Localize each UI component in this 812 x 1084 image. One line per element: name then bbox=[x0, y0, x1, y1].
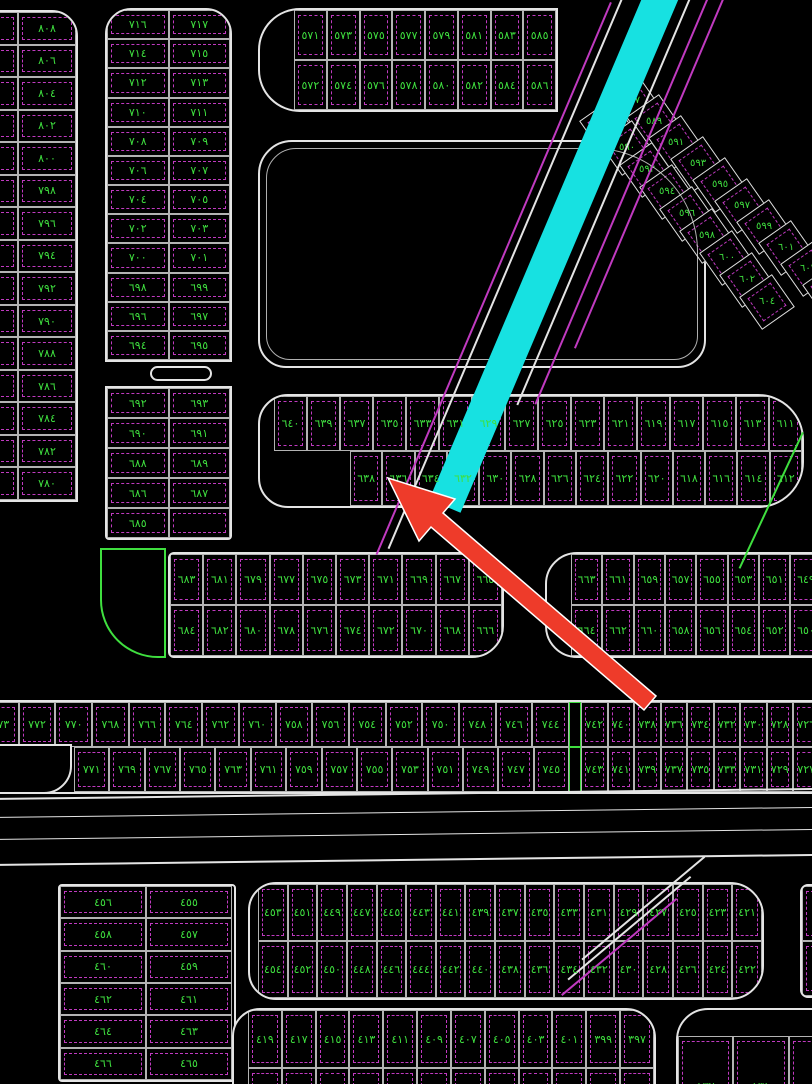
plot-number: ٦٣٨ bbox=[357, 473, 375, 484]
plot-cell[interactable]: ٦٩٧ bbox=[169, 302, 231, 331]
plot-cell[interactable]: ٧٨٨ bbox=[18, 337, 76, 370]
plot-cell[interactable]: ٥٨٤ bbox=[491, 60, 524, 110]
plot-cell[interactable]: ٤٠٧ bbox=[451, 1010, 485, 1068]
plot-row: ٧١٠٧١١ bbox=[107, 98, 230, 127]
plot-cell[interactable]: ٨٠٤ bbox=[18, 77, 76, 110]
plot-cell[interactable]: ٧٤١ bbox=[608, 747, 635, 792]
plot-cell[interactable]: ٦٨٧ bbox=[169, 478, 231, 508]
plot-cell[interactable]: ٦٥٢ bbox=[759, 605, 790, 656]
plot-cell[interactable]: ٨٠٦ bbox=[18, 45, 76, 78]
plot-cell[interactable]: ٤٢٤ bbox=[703, 941, 733, 998]
plot-cell[interactable]: ٧١٧ bbox=[169, 10, 231, 39]
plot-cell[interactable]: ٧٢٧ bbox=[793, 747, 812, 792]
plot-cell[interactable]: ٦٩٩ bbox=[169, 273, 231, 302]
plot-cell[interactable]: ٧٩١ bbox=[0, 305, 18, 338]
plot-cell[interactable]: ٧٤٥ bbox=[534, 747, 569, 792]
plot-cell[interactable]: ٤٦٥ bbox=[146, 1048, 232, 1080]
plot-cell[interactable]: ٧٣٨ bbox=[634, 702, 661, 747]
plot-cell[interactable]: ٧٩٢ bbox=[18, 272, 76, 305]
plot-cell[interactable]: ٥٧٣ bbox=[327, 10, 360, 60]
plot-number: ٦٠٢ bbox=[739, 275, 755, 285]
plot-cell[interactable]: ٤٦٤ bbox=[60, 1015, 146, 1047]
plot-cell[interactable]: ٦٧١ bbox=[369, 554, 402, 605]
plot-cell[interactable]: ٧٦٠ bbox=[239, 702, 276, 747]
plot-cell[interactable] bbox=[485, 1068, 519, 1084]
plot-cell[interactable]: ٦٩٤ bbox=[107, 331, 169, 360]
plot-cell[interactable]: ٧٨٠ bbox=[18, 467, 76, 500]
plot-cell[interactable]: ٧٣٢ bbox=[714, 702, 741, 747]
plot-cell[interactable]: ٦٦٧ bbox=[436, 554, 469, 605]
plot-cell[interactable]: ٧٥٥ bbox=[357, 747, 392, 792]
plot-cell[interactable]: ٦٦٦ bbox=[469, 605, 502, 656]
plot-cell[interactable]: ٧٥٢ bbox=[386, 702, 423, 747]
plot-cell[interactable]: ٥٨١ bbox=[458, 10, 491, 60]
plot-cell[interactable]: ٤٠٩ bbox=[417, 1010, 451, 1068]
plot-number: ٦٢١ bbox=[612, 418, 630, 429]
plot-number: ٦٢٩ bbox=[480, 418, 498, 429]
plot-cell[interactable]: ٦٧٣ bbox=[336, 554, 369, 605]
plot-cell[interactable]: ٥٧٥ bbox=[360, 10, 393, 60]
plot-cell[interactable]: ٤٣٠ bbox=[614, 941, 644, 998]
plot-cell[interactable] bbox=[789, 1036, 812, 1084]
plot-number: ٥٧٩ bbox=[433, 30, 451, 41]
plot-cell[interactable]: ٧١٦ bbox=[107, 10, 169, 39]
plot-row: ٧١٤٧١٥ bbox=[107, 39, 230, 68]
plot-cell[interactable]: ٤٤٩ bbox=[317, 884, 347, 941]
plot-cell[interactable]: ٧١١ bbox=[169, 98, 231, 127]
plot-cell[interactable]: ٦٥٩ bbox=[634, 554, 665, 605]
plot-cell[interactable]: ٧٠٠ bbox=[107, 243, 169, 272]
plot-number: ٧٤٥ bbox=[542, 764, 560, 775]
plot-cell[interactable]: ٧٤٣ bbox=[581, 747, 608, 792]
plot-cell[interactable]: ٦١٤ bbox=[737, 451, 769, 506]
plot-setback-boundary bbox=[173, 513, 227, 533]
plot-setback-boundary bbox=[0, 407, 14, 430]
plot-cell[interactable]: ٦٧٥ bbox=[303, 554, 336, 605]
plot-cell[interactable]: ٧٧١ bbox=[74, 747, 109, 792]
plot-cell[interactable]: ٦٣٨ bbox=[350, 451, 382, 506]
plot-number: ٧٣٩ bbox=[638, 764, 656, 775]
plot-cell[interactable]: ٧٣٥ bbox=[687, 747, 714, 792]
plot-cell[interactable]: ٧٨٢ bbox=[18, 435, 76, 468]
plot-cell[interactable]: ٧٤٨ bbox=[459, 702, 496, 747]
plot-cell[interactable]: ٤٤١ bbox=[436, 884, 466, 941]
plot-cell[interactable]: ٧٠٥ bbox=[169, 185, 231, 214]
plot-cell[interactable]: ٦٧٩ bbox=[236, 554, 269, 605]
plot-number: ٤٦٢ bbox=[94, 994, 112, 1005]
plot-cell[interactable]: ٦٢٣ bbox=[571, 396, 604, 451]
plot-cell[interactable]: ٤٤٠ bbox=[465, 941, 495, 998]
plot-cell[interactable]: ٤٣٧ bbox=[495, 884, 525, 941]
plot-cell[interactable]: ٧٣٩ bbox=[634, 747, 661, 792]
plot-cell[interactable]: ٤٢٥ bbox=[673, 884, 703, 941]
plot-cell[interactable]: ٦٥٦ bbox=[696, 605, 727, 656]
plot-cell[interactable]: ٧٠٣ bbox=[169, 214, 231, 243]
plot-cell[interactable]: ٧٠٨ bbox=[107, 127, 169, 156]
plot-cell[interactable]: ٤٤٣ bbox=[406, 884, 436, 941]
plot-cell[interactable]: ٧٢٩ bbox=[767, 747, 794, 792]
plot-cell[interactable] bbox=[169, 508, 231, 538]
plot-cell[interactable]: ٦٦١ bbox=[602, 554, 633, 605]
plot-cell[interactable]: ٥٧١ bbox=[294, 10, 327, 60]
plot-cell[interactable]: ٤٣٩ bbox=[465, 884, 495, 941]
plot-cell[interactable]: ٧٩٠ bbox=[18, 305, 76, 338]
plot-cell[interactable]: ٧٤٤ bbox=[532, 702, 569, 747]
plot-cell[interactable]: ٤١٧ bbox=[282, 1010, 316, 1068]
plot-number: ٦٣٢ bbox=[454, 473, 472, 484]
plot-cell[interactable] bbox=[316, 1068, 350, 1084]
plot-cell[interactable]: ٨٠٢ bbox=[18, 110, 76, 143]
plot-cell[interactable]: ٤٣١ bbox=[584, 884, 614, 941]
plot-setback-boundary bbox=[0, 17, 14, 40]
plot-cell[interactable]: ٧٦١ bbox=[251, 747, 286, 792]
plot-cell[interactable]: ٧٩٣ bbox=[0, 272, 18, 305]
plot-cell[interactable]: ٤٣٣ bbox=[554, 884, 584, 941]
plot-number: ٥٧٣ bbox=[334, 30, 352, 41]
plot-cell[interactable]: ٤٣٨ bbox=[495, 941, 525, 998]
plot-cell[interactable] bbox=[620, 1068, 654, 1084]
plot-cell[interactable]: ٤١٩ bbox=[248, 1010, 282, 1068]
block-top-left-outer: ٨٠٩٨٠٨٨٠٧٨٠٦٨٠٥٨٠٤٨٠٣٨٠٢٨٠١٨٠٠٧٩٩٧٩٨٧٩٧٧… bbox=[0, 10, 78, 502]
plot-number: ٤٣٦ bbox=[531, 964, 549, 975]
plot-cell[interactable]: ٦٣٠ bbox=[479, 451, 511, 506]
plot-cell[interactable]: ٧٦٢ bbox=[202, 702, 239, 747]
plot-cell[interactable]: ٦٩٦ bbox=[107, 302, 169, 331]
plot-cell[interactable]: ٧٥١ bbox=[428, 747, 463, 792]
plot-cell[interactable]: ٦٥٨ bbox=[665, 605, 696, 656]
plot-cell[interactable]: ٧٠٢ bbox=[107, 214, 169, 243]
plot-cell[interactable] bbox=[282, 1068, 316, 1084]
plot-number: ٤٥٢ bbox=[294, 964, 312, 975]
plot-cell[interactable]: ٦٧٢ bbox=[369, 605, 402, 656]
plot-cell[interactable]: ٧٣٧ bbox=[661, 747, 688, 792]
plot-cell[interactable]: ٧٦٤ bbox=[165, 702, 202, 747]
plot-cell[interactable]: ٧٤٧ bbox=[498, 747, 533, 792]
plot-number: ٧٠٥ bbox=[190, 194, 208, 205]
plot-cell[interactable]: ٦٣٩ bbox=[307, 396, 340, 451]
plot-cell[interactable] bbox=[519, 1068, 553, 1084]
plot-setback-boundary bbox=[806, 946, 812, 991]
plot-cell[interactable]: ٤٢٢ bbox=[732, 941, 762, 998]
plot-row: ٦٨٦٦٨٧ bbox=[107, 478, 230, 508]
plot-cell[interactable]: ٧٥٣ bbox=[392, 747, 427, 792]
plot-cell[interactable]: ٦٦٥ bbox=[469, 554, 502, 605]
block-top-middle: ٥٧١٥٧٣٥٧٥٥٧٧٥٧٩٥٨١٥٨٣٥٨٥٥٧٢٥٧٤٥٧٦٥٧٨٥٨٠٥… bbox=[258, 8, 558, 112]
plot-cell[interactable]: ٧٨٣ bbox=[0, 435, 18, 468]
plot-cell[interactable]: ٥٧٤ bbox=[327, 60, 360, 110]
plot-cell[interactable]: ٤١٥ bbox=[316, 1010, 350, 1068]
plot-cell[interactable]: ٦٢٥ bbox=[538, 396, 571, 451]
plot-cell[interactable]: ٦١٢ bbox=[770, 451, 802, 506]
plot-cell[interactable]: ٤٦١ bbox=[146, 983, 232, 1015]
plot-cell[interactable]: ٤٥٥ bbox=[146, 886, 232, 918]
plot-cell[interactable]: ٧٢٦ bbox=[793, 702, 812, 747]
plot-cell[interactable]: ٦٥٥ bbox=[696, 554, 727, 605]
plot-row: ٦٨٨٦٨٩ bbox=[107, 448, 230, 478]
plot-cell[interactable]: ٥٨٠ bbox=[425, 60, 458, 110]
plot-cell[interactable]: ٧١٤ bbox=[107, 39, 169, 68]
plot-cell[interactable]: ٤٦٢ bbox=[60, 983, 146, 1015]
plot-cell[interactable]: ٦٩٠ bbox=[107, 418, 169, 448]
plot-cell[interactable]: ٦٧٧ bbox=[270, 554, 303, 605]
plot-cell[interactable]: ٨٠٨ bbox=[18, 12, 76, 45]
plot-cell[interactable]: ٧٤٠ bbox=[608, 702, 635, 747]
plot-cell[interactable]: ٧٠٩ bbox=[169, 127, 231, 156]
plot-cell[interactable]: ٧٩٥ bbox=[0, 240, 18, 273]
plot-cell[interactable] bbox=[383, 1068, 417, 1084]
plot-cell[interactable]: ٤٥٧ bbox=[146, 918, 232, 950]
plot-cell[interactable]: ١٣١ bbox=[733, 1036, 788, 1084]
plot-cell[interactable] bbox=[586, 1068, 620, 1084]
plot-cell[interactable]: ٦٩٨ bbox=[107, 273, 169, 302]
plot-setback-boundary bbox=[793, 1041, 812, 1084]
plot-cell[interactable]: ٧٨٧ bbox=[0, 370, 18, 403]
plot-cell[interactable]: ٦٥٠ bbox=[790, 605, 812, 656]
plot-setback-boundary bbox=[590, 1073, 616, 1084]
plot-cell[interactable]: ٧٨٥ bbox=[0, 402, 18, 435]
plot-cell[interactable]: ٧٥٤ bbox=[349, 702, 386, 747]
plot-number: ٤٤٧ bbox=[353, 907, 371, 918]
plot-cell[interactable]: ٤٠١ bbox=[552, 1010, 586, 1068]
plot-cell[interactable]: ٤٢٦ bbox=[673, 941, 703, 998]
plot-cell[interactable]: ٧٩٨ bbox=[18, 175, 76, 208]
plot-row: ٤٦٢٤٦١ bbox=[60, 983, 234, 1015]
plot-cell[interactable]: ٧٣٦ bbox=[661, 702, 688, 747]
plot-cell[interactable]: ٦١٥ bbox=[703, 396, 736, 451]
plot-cell[interactable]: ٧١٣ bbox=[169, 68, 231, 97]
plot-cell[interactable]: ٧٤٢ bbox=[581, 702, 608, 747]
plot-cell[interactable]: ٥٧٢ bbox=[294, 60, 327, 110]
plot-cell[interactable]: ٧٦٦ bbox=[129, 702, 166, 747]
plot-cell[interactable]: ٥٧٧ bbox=[392, 10, 425, 60]
plot-cell[interactable]: ٨٠١ bbox=[0, 142, 18, 175]
plot-cell[interactable]: ٦١٧ bbox=[670, 396, 703, 451]
plot-cell[interactable]: ٧٥٦ bbox=[312, 702, 349, 747]
plot-cell[interactable]: ٧٥٧ bbox=[322, 747, 357, 792]
plot-cell[interactable]: ٧٨٦ bbox=[18, 370, 76, 403]
plot-cell[interactable]: ٤٥٠ bbox=[317, 941, 347, 998]
plot-cell[interactable]: ٧٩٧ bbox=[0, 207, 18, 240]
plot-cell[interactable]: ٦٣٥ bbox=[373, 396, 406, 451]
plot-cell[interactable]: ٤٦٠ bbox=[60, 951, 146, 983]
plot-cell[interactable]: ٧٤٦ bbox=[496, 702, 533, 747]
corner-plot-green bbox=[100, 548, 166, 658]
plot-cell[interactable]: ٦٥٤ bbox=[728, 605, 759, 656]
plot-cell[interactable]: ٦٢٧ bbox=[505, 396, 538, 451]
plot-number: ٦٣٦ bbox=[390, 473, 408, 484]
plot-cell[interactable]: ٧٠٦ bbox=[107, 156, 169, 185]
plot-number: ٦١٤ bbox=[745, 473, 763, 484]
plot-cell[interactable]: ٤٢١ bbox=[732, 884, 762, 941]
plot-cell[interactable]: ٤٥٤ bbox=[258, 941, 288, 998]
plot-cell[interactable]: ٦٢٨ bbox=[511, 451, 543, 506]
plot-cell[interactable]: ٤٥٣ bbox=[258, 884, 288, 941]
plot-cell[interactable]: ٨٠٣ bbox=[0, 110, 18, 143]
plot-cell[interactable]: ٤٣٥ bbox=[525, 884, 555, 941]
plot-cell[interactable]: ٨٠٩ bbox=[0, 12, 18, 45]
plot-cell[interactable]: ٧٩٩ bbox=[0, 175, 18, 208]
plot-cell[interactable]: ٤٥١ bbox=[288, 884, 318, 941]
plot-number: ٦١٩ bbox=[645, 418, 663, 429]
plot-number: ٧٦٣ bbox=[224, 764, 242, 775]
plot-cell[interactable]: ٤٣٢ bbox=[584, 941, 614, 998]
plot-number: ٦١٣ bbox=[744, 418, 762, 429]
plot-cell[interactable]: ٦٨٨ bbox=[107, 448, 169, 478]
plot-cell[interactable]: ٧٤٩ bbox=[463, 747, 498, 792]
plot-cell[interactable]: ٧٦٩ bbox=[109, 747, 144, 792]
plot-cell[interactable]: ٤٤٢ bbox=[436, 941, 466, 998]
plot-cell[interactable]: ٦٤٩ bbox=[790, 554, 812, 605]
plot-cell[interactable]: ٦٢٦ bbox=[544, 451, 576, 506]
plot-number: ٧٠١ bbox=[190, 252, 208, 263]
plot-cell[interactable]: ٧٠٧ bbox=[169, 156, 231, 185]
plot-cell[interactable] bbox=[248, 1068, 282, 1084]
plot-cell[interactable]: ٧٨٤ bbox=[18, 402, 76, 435]
plot-cell[interactable]: ٤٢٣ bbox=[703, 884, 733, 941]
plot-cell[interactable]: ٦٨٩ bbox=[169, 448, 231, 478]
plot-cell[interactable]: ٥٨٢ bbox=[458, 60, 491, 110]
plot-number: ٧٠٢ bbox=[129, 223, 147, 234]
plot-cell[interactable]: ٧١٠ bbox=[107, 98, 169, 127]
plot-cell[interactable] bbox=[349, 1068, 383, 1084]
plot-cell[interactable]: ٧٠١ bbox=[169, 243, 231, 272]
plot-cell[interactable]: ٦٦٨ bbox=[436, 605, 469, 656]
plot-cell[interactable]: ٧٧٣ bbox=[0, 702, 19, 747]
plot-cell[interactable]: ٤٤٧ bbox=[347, 884, 377, 941]
plot-cell[interactable]: ٦٧٨ bbox=[270, 605, 303, 656]
plot-cell[interactable]: ٥٧٨ bbox=[392, 60, 425, 110]
plot-cell[interactable]: ٦٥٧ bbox=[665, 554, 696, 605]
plot-cell[interactable]: ٦٦٠ bbox=[634, 605, 665, 656]
plot-cell[interactable]: ٥٧٩ bbox=[425, 10, 458, 60]
plot-cell[interactable]: ٦٢٤ bbox=[576, 451, 608, 506]
plot-cell[interactable]: ٧٧٢ bbox=[19, 702, 56, 747]
plot-cell[interactable]: ٦٧٠ bbox=[402, 605, 435, 656]
plot-cell[interactable]: ٦٢٠ bbox=[641, 451, 673, 506]
plot-cell[interactable] bbox=[417, 1068, 451, 1084]
plot-cell[interactable]: ٦١٨ bbox=[673, 451, 705, 506]
plot-cell[interactable]: ٤٠٣ bbox=[519, 1010, 553, 1068]
plot-number: ٧١٣ bbox=[190, 77, 208, 88]
plot-cell[interactable]: ٧٨٩ bbox=[0, 337, 18, 370]
plot-cell[interactable]: ٦٦٢ bbox=[602, 605, 633, 656]
plot-cell[interactable]: ٦٩١ bbox=[169, 418, 231, 448]
plot-cell[interactable]: ٦٢١ bbox=[604, 396, 637, 451]
plot-cell[interactable]: ٥٨٣ bbox=[491, 10, 524, 60]
plot-number: ٤٢٩ bbox=[620, 907, 638, 918]
plot-cell[interactable]: ٤٤٥ bbox=[377, 884, 407, 941]
plot-number: ٤٥٧ bbox=[180, 929, 198, 940]
plot-cell[interactable]: ٦٢٢ bbox=[608, 451, 640, 506]
plot-cell[interactable]: ٦١٦ bbox=[705, 451, 737, 506]
plot-cell[interactable]: ٥٨٥ bbox=[523, 10, 556, 60]
plot-number: ٧٢٩ bbox=[771, 764, 789, 775]
plot-cell[interactable]: ٦٨٣ bbox=[170, 554, 203, 605]
plot-cell[interactable]: ٧٦٥ bbox=[180, 747, 215, 792]
plot-cell[interactable]: ٦٦٤ bbox=[571, 605, 602, 656]
plot-cell[interactable]: ٧٨١ bbox=[0, 467, 18, 500]
plot-cell[interactable]: ٥٨٦ bbox=[523, 60, 556, 110]
plot-cell[interactable]: ٥٧٦ bbox=[360, 60, 393, 110]
plot-cell[interactable]: ٤٦٦ bbox=[60, 1048, 146, 1080]
plot-cell[interactable]: ٤٣٦ bbox=[525, 941, 555, 998]
plot-cell[interactable]: ٧٠٤ bbox=[107, 185, 169, 214]
plot-cell[interactable]: ٧٢٨ bbox=[767, 702, 794, 747]
plot-cell[interactable]: ٤٢٨ bbox=[643, 941, 673, 998]
plot-cell[interactable]: ٨٠٧ bbox=[0, 45, 18, 78]
plot-cell[interactable]: ٦٨٤ bbox=[170, 605, 203, 656]
plot-cell[interactable]: ١٣٢ bbox=[678, 1036, 733, 1084]
plot-cell[interactable]: ٦٨٥ bbox=[107, 508, 169, 538]
plot-cell[interactable]: ٤٤٨ bbox=[347, 941, 377, 998]
plot-cell[interactable]: ٦١٩ bbox=[637, 396, 670, 451]
plot-cell[interactable]: ٦٧٤ bbox=[336, 605, 369, 656]
plot-cell[interactable]: ٦٧٦ bbox=[303, 605, 336, 656]
plot-cell[interactable]: ٣٩٧ bbox=[620, 1010, 654, 1068]
plot-cell[interactable]: ٤٥٨ bbox=[60, 918, 146, 950]
plot-cell[interactable]: ٣٩٩ bbox=[586, 1010, 620, 1068]
plot-setback-boundary bbox=[455, 1073, 481, 1084]
plot-cell[interactable]: ٦٩٥ bbox=[169, 331, 231, 360]
plot-cell[interactable]: ٧١٢ bbox=[107, 68, 169, 97]
plot-cell[interactable] bbox=[552, 1068, 586, 1084]
plot-cell[interactable]: ٧٣٠ bbox=[740, 702, 767, 747]
plot-cell[interactable] bbox=[802, 886, 812, 941]
plot-cell[interactable]: ٧٦٨ bbox=[92, 702, 129, 747]
plot-cell[interactable]: ٨٠٠ bbox=[18, 142, 76, 175]
plot-cell[interactable]: ٧٥٠ bbox=[422, 702, 459, 747]
plot-cell[interactable]: ٤١٣ bbox=[349, 1010, 383, 1068]
plot-cell[interactable] bbox=[451, 1068, 485, 1084]
plot-cell[interactable]: ٤١١ bbox=[383, 1010, 417, 1068]
plot-cell[interactable]: ٧٦٣ bbox=[215, 747, 250, 792]
plot-cell[interactable]: ٧٣٤ bbox=[687, 702, 714, 747]
plot-cell[interactable]: ٤٥٢ bbox=[288, 941, 318, 998]
plot-cell[interactable]: ٦٦٣ bbox=[571, 554, 602, 605]
plot-cell[interactable]: ٦٨٠ bbox=[236, 605, 269, 656]
plot-cell[interactable]: ٧٦٧ bbox=[145, 747, 180, 792]
plot-cell[interactable]: ٧١٥ bbox=[169, 39, 231, 68]
plot-cell[interactable]: ٦٩٣ bbox=[169, 388, 231, 418]
plot-cell[interactable]: ٨٠٥ bbox=[0, 77, 18, 110]
plot-cell[interactable]: ٤٥٩ bbox=[146, 951, 232, 983]
plot-cell[interactable]: ٤٤٤ bbox=[406, 941, 436, 998]
plot-cell[interactable]: ٧٣١ bbox=[740, 747, 767, 792]
plot-row: ٧١٢٧١٣ bbox=[107, 68, 230, 97]
plot-cell[interactable]: ٧٩٤ bbox=[18, 240, 76, 273]
plot-cell[interactable]: ٦٨٦ bbox=[107, 478, 169, 508]
plot-cell[interactable]: ٧٧٠ bbox=[55, 702, 92, 747]
plot-cell[interactable]: ٤٤٦ bbox=[377, 941, 407, 998]
plot-cell[interactable]: ٦٥١ bbox=[759, 554, 790, 605]
plot-cell[interactable]: ٤٠٥ bbox=[485, 1010, 519, 1068]
plot-cell[interactable]: ٤٥٦ bbox=[60, 886, 146, 918]
plot-cell[interactable]: ٤٦٣ bbox=[146, 1015, 232, 1047]
plot-cell[interactable]: ٧٣٣ bbox=[714, 747, 741, 792]
plot-number: ٤٣١ bbox=[590, 907, 608, 918]
plot-cell[interactable]: ٦٣٧ bbox=[340, 396, 373, 451]
plot-cell[interactable]: ٧٥٨ bbox=[276, 702, 313, 747]
plot-cell[interactable]: ٦٦٩ bbox=[402, 554, 435, 605]
plot-cell[interactable]: ٦١٣ bbox=[736, 396, 769, 451]
plot-cell[interactable]: ٧٩٦ bbox=[18, 207, 76, 240]
plot-cell[interactable]: ٦٩٢ bbox=[107, 388, 169, 418]
plot-cell[interactable]: ٦٨١ bbox=[203, 554, 236, 605]
plot-cell[interactable]: ٦٤٠ bbox=[274, 396, 307, 451]
plot-cell[interactable]: ٧٥٩ bbox=[286, 747, 321, 792]
plot-cell[interactable]: ٦٨٢ bbox=[203, 605, 236, 656]
plot-cell[interactable] bbox=[802, 941, 812, 996]
